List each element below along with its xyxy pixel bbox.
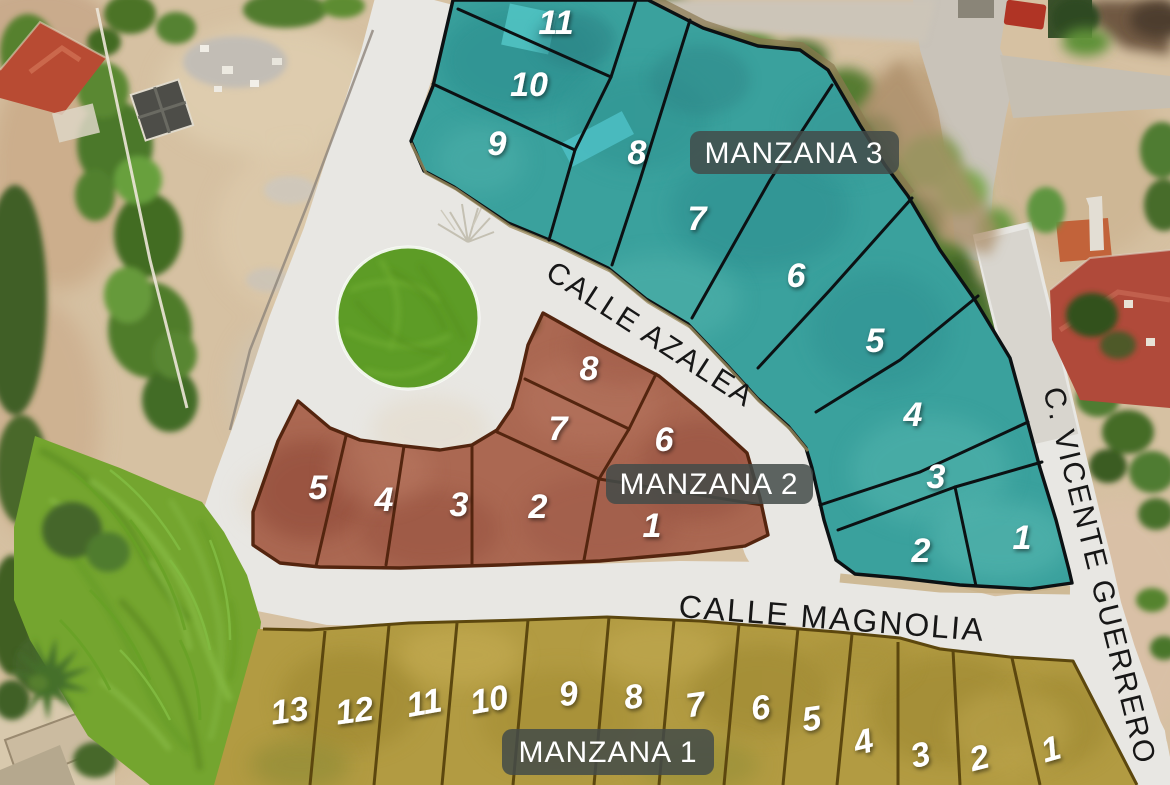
svg-text:7: 7 <box>688 200 709 238</box>
svg-text:6: 6 <box>787 257 807 295</box>
svg-text:2: 2 <box>528 488 548 526</box>
svg-text:11: 11 <box>403 681 444 725</box>
svg-text:10: 10 <box>510 66 548 104</box>
svg-text:12: 12 <box>333 690 376 733</box>
svg-text:4: 4 <box>903 396 923 434</box>
svg-text:MANZANA 3: MANZANA 3 <box>704 137 883 170</box>
svg-text:11: 11 <box>538 4 573 42</box>
svg-text:8: 8 <box>580 350 599 388</box>
svg-text:3: 3 <box>927 458 946 496</box>
svg-text:4: 4 <box>374 481 394 519</box>
svg-text:MANZANA 1: MANZANA 1 <box>518 736 697 769</box>
svg-text:10: 10 <box>467 678 511 722</box>
svg-text:5: 5 <box>309 469 329 507</box>
svg-text:8: 8 <box>628 134 647 172</box>
svg-text:1: 1 <box>643 507 662 545</box>
svg-text:MANZANA 2: MANZANA 2 <box>619 468 798 501</box>
svg-text:5: 5 <box>866 322 886 360</box>
svg-text:6: 6 <box>655 421 675 459</box>
svg-text:7: 7 <box>549 410 570 448</box>
svg-text:3: 3 <box>450 486 469 524</box>
svg-text:1: 1 <box>1013 519 1032 557</box>
svg-text:2: 2 <box>911 532 931 570</box>
svg-text:13: 13 <box>268 690 311 733</box>
svg-text:9: 9 <box>488 125 507 163</box>
